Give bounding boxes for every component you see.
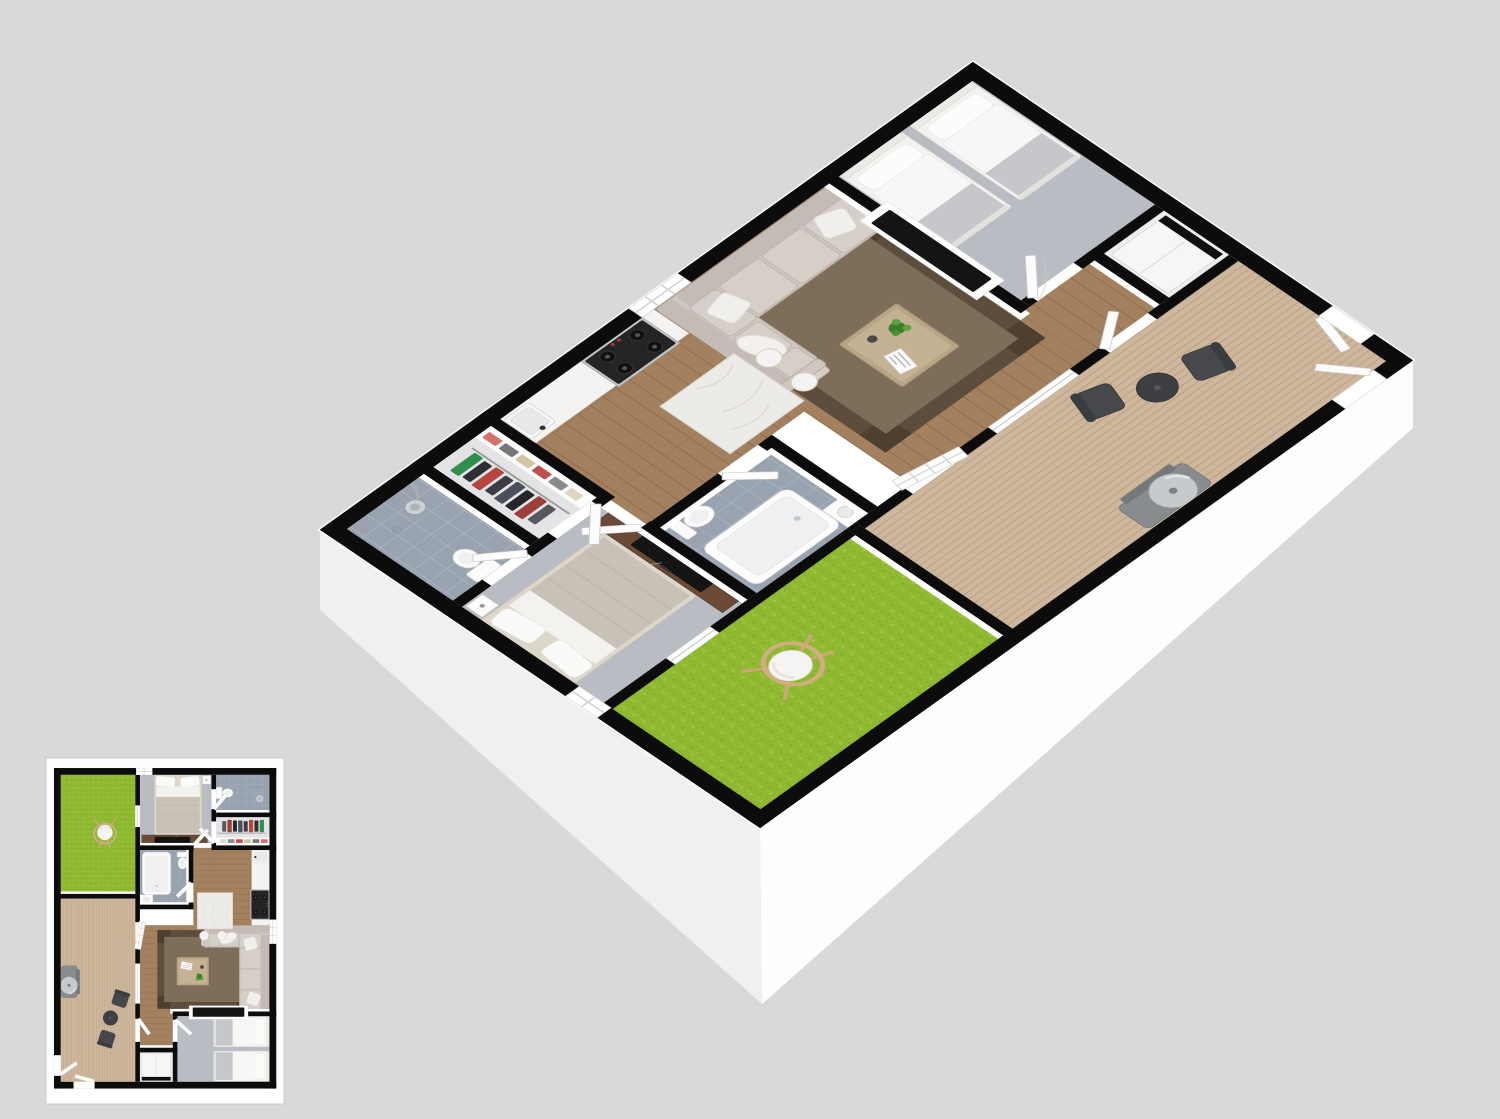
- floor-plan-image: [0, 0, 1500, 1119]
- floor-plan-page: [0, 0, 1500, 1119]
- floor-plan-thumbnail[interactable]: [46, 758, 284, 1104]
- floor-plan-2d-view: [53, 767, 276, 1089]
